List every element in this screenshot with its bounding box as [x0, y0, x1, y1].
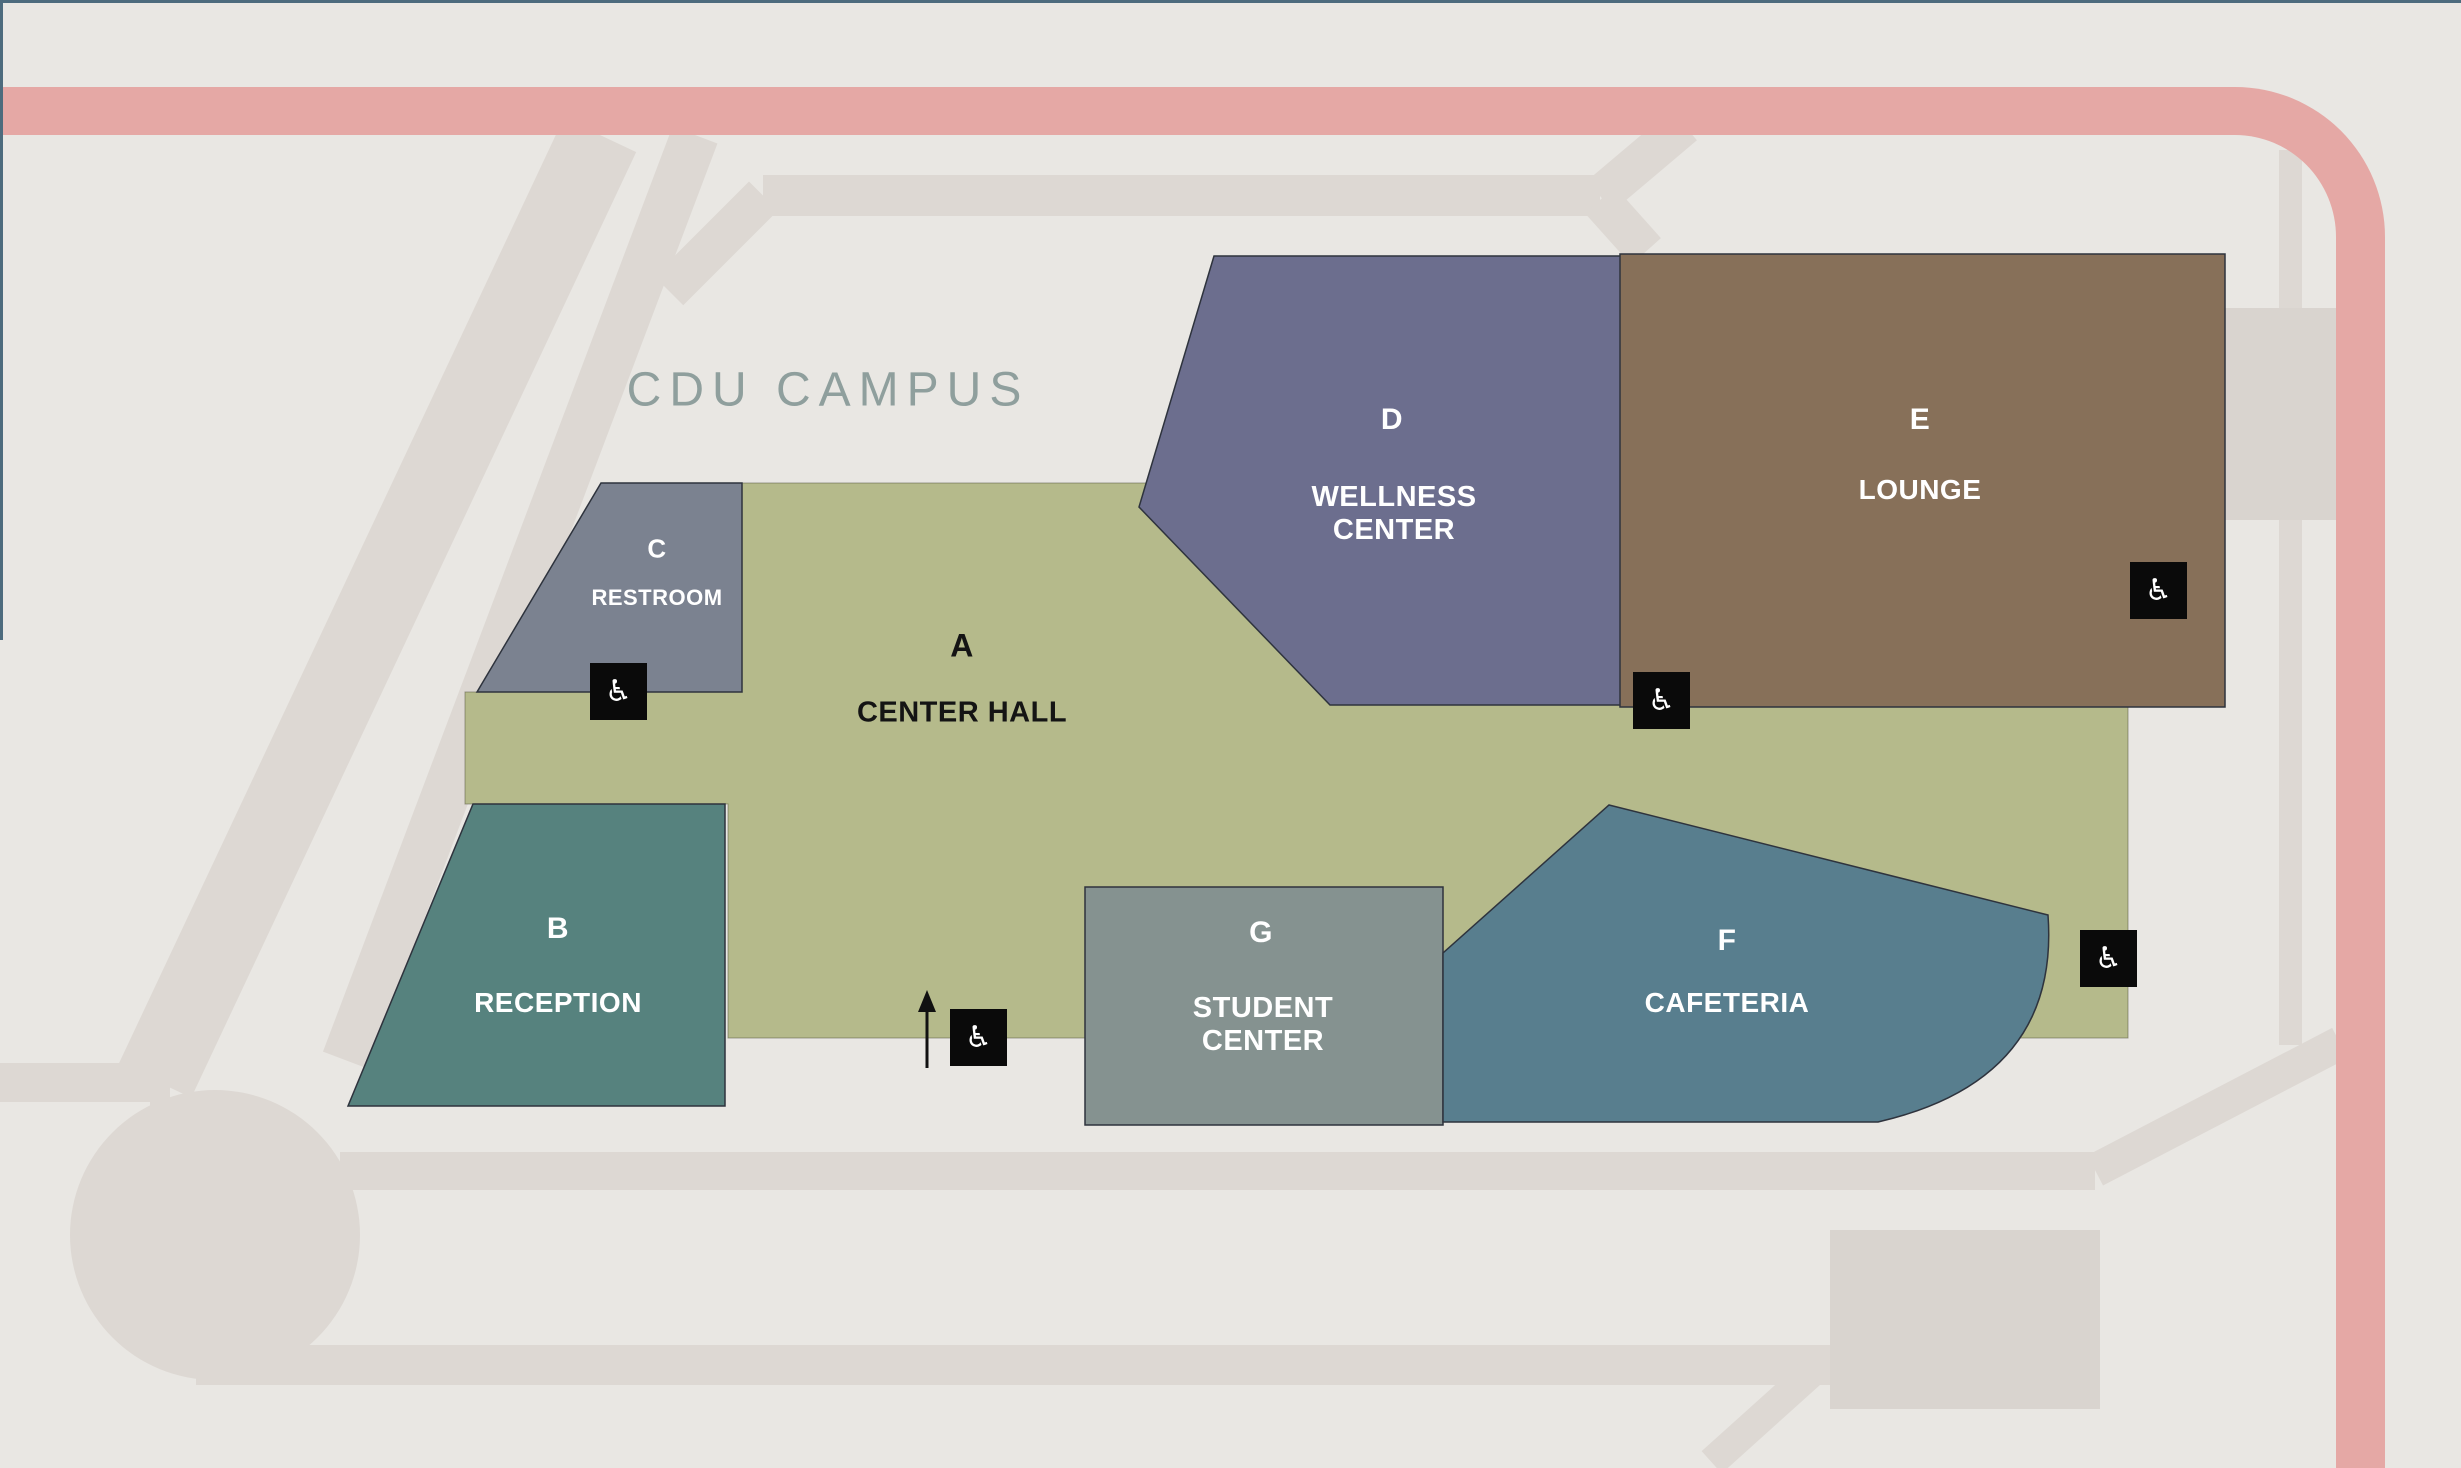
- accessibility-icon: ♿: [2130, 562, 2187, 619]
- building-c-name: RESTROOM: [591, 585, 722, 611]
- wheelchair-icon: ♿: [965, 1023, 992, 1053]
- wheelchair-icon: ♿: [2145, 576, 2172, 606]
- building-a-letter: A: [950, 628, 974, 665]
- wheelchair-icon: ♿: [1648, 686, 1675, 716]
- building-d-letter: D: [1381, 403, 1403, 437]
- building-b-letter: B: [547, 912, 569, 946]
- accessibility-icon: ♿: [2080, 930, 2137, 987]
- entrance-arrow-icon: [908, 986, 944, 1072]
- building-f-name: CAFETERIA: [1645, 987, 1810, 1019]
- building-g-name: STUDENT CENTER: [1193, 992, 1333, 1058]
- wheelchair-icon: ♿: [2095, 944, 2122, 974]
- accessibility-icon: ♿: [950, 1009, 1007, 1066]
- building-e-name: LOUNGE: [1859, 474, 1982, 506]
- building-e-letter: E: [1910, 403, 1931, 437]
- building-d-name: WELLNESS CENTER: [1311, 481, 1476, 547]
- wheelchair-icon: ♿: [605, 677, 632, 707]
- building-b-shape: [348, 804, 725, 1106]
- accessibility-icon: ♿: [1633, 672, 1690, 729]
- building-f-letter: F: [1718, 924, 1737, 958]
- building-g-letter: G: [1249, 916, 1273, 950]
- map-title: CDU CAMPUS: [627, 363, 1030, 418]
- building-c-letter: C: [647, 534, 666, 565]
- building-b-name: RECEPTION: [474, 987, 642, 1019]
- campus-map: CDU CAMPUS A CENTER HALL B RECEPTION C R…: [0, 0, 2461, 1468]
- accessibility-icon: ♿: [590, 663, 647, 720]
- building-a-name: CENTER HALL: [857, 697, 1067, 730]
- building-shapes: [0, 0, 2461, 1468]
